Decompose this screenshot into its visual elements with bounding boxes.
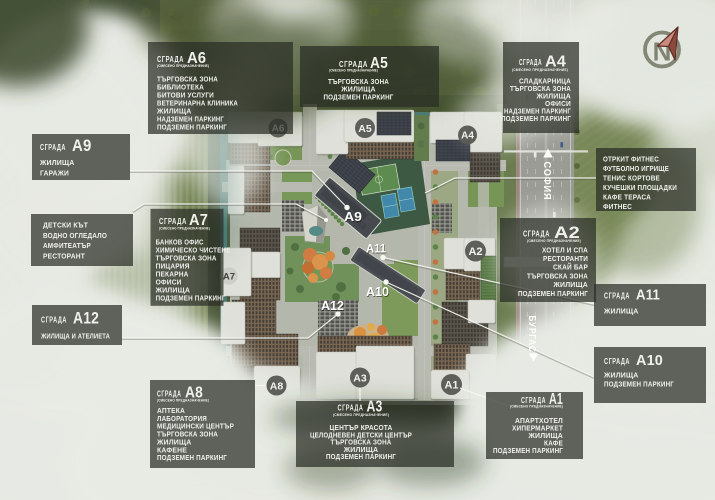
- svg-text:A2: A2: [468, 246, 482, 258]
- svg-text:СГРАДА: СГРАДА: [41, 316, 67, 325]
- svg-text:A10: A10: [636, 353, 663, 369]
- svg-text:ЖИЛИЩА: ЖИЛИЩА: [553, 280, 589, 289]
- svg-text:A11: A11: [366, 242, 386, 256]
- svg-text:ПОДЗЕМЕН ПАРКИНГ: ПОДЗЕМЕН ПАРКИНГ: [501, 114, 571, 123]
- svg-text:A12: A12: [321, 299, 344, 313]
- svg-text:(СМЕСЕНО ПРЕДНАЗНАЧЕНИЕ): (СМЕСЕНО ПРЕДНАЗНАЧЕНИЕ): [333, 412, 389, 417]
- svg-text:A1: A1: [444, 379, 458, 391]
- svg-text:(СМЕСЕНО ПРЕДНАЗНАЧЕНИЕ): (СМЕСЕНО ПРЕДНАЗНАЧЕНИЕ): [527, 238, 581, 243]
- svg-text:A11: A11: [636, 288, 660, 304]
- svg-text:СГРАДА: СГРАДА: [604, 357, 630, 366]
- svg-text:A12: A12: [73, 310, 99, 328]
- svg-text:ФУТБОЛНО ИГРИЩЕ: ФУТБОЛНО ИГРИЩЕ: [603, 164, 669, 173]
- svg-text:(СМЕСЕНО ПРЕДНАЗНАЧЕНИЕ): (СМЕСЕНО ПРЕДНАЗНАЧЕНИЕ): [510, 404, 563, 409]
- svg-text:A8: A8: [270, 380, 284, 392]
- svg-text:ЖИЛИЩА: ЖИЛИЩА: [603, 307, 639, 316]
- svg-text:(СМЕСЕНО ПРЕДНАЗНАЧЕНИЕ): (СМЕСЕНО ПРЕДНАЗНАЧЕНИЕ): [159, 225, 210, 230]
- svg-text:ГАРАЖИ: ГАРАЖИ: [40, 169, 69, 178]
- svg-text:СКАЙ БАР: СКАЙ БАР: [553, 263, 588, 272]
- svg-text:ПОДЗЕМЕН ПАРКИНГ: ПОДЗЕМЕН ПАРКИНГ: [326, 452, 396, 461]
- svg-text:ДЕТСКИ КЪТ: ДЕТСКИ КЪТ: [43, 221, 88, 230]
- svg-text:КАФЕ ТЕРАСА: КАФЕ ТЕРАСА: [603, 192, 651, 201]
- svg-text:A3: A3: [353, 372, 367, 384]
- svg-text:A10: A10: [366, 284, 389, 299]
- svg-text:КУЧЕШКИ ПЛОЩАДКИ: КУЧЕШКИ ПЛОЩАДКИ: [603, 183, 677, 192]
- svg-text:ОТРКИТ ФИТНЕС: ОТРКИТ ФИТНЕС: [603, 155, 659, 164]
- svg-text:(СМЕСЕНО ПРЕДНАЗНАЧЕНИЕ): (СМЕСЕНО ПРЕДНАЗНАЧЕНИЕ): [157, 398, 209, 403]
- svg-text:(СМЕСЕНО ПРЕДНАЗНАЧЕНИЕ): (СМЕСЕНО ПРЕДНАЗНАЧЕНИЕ): [329, 68, 378, 73]
- svg-text:ФИТНЕС: ФИТНЕС: [603, 202, 632, 211]
- svg-text:(СМЕСЕНО ПРЕДНАЗНАЧЕНИЕ): (СМЕСЕНО ПРЕДНАЗНАЧЕНИЕ): [157, 63, 210, 68]
- svg-text:ЖИЛИЩА: ЖИЛИЩА: [603, 371, 639, 380]
- svg-text:ТЪРГОВСКА ЗОНА: ТЪРГОВСКА ЗОНА: [527, 271, 588, 280]
- svg-text:ПОДЗЕМЕН ПАРКИНГ: ПОДЗЕМЕН ПАРКИНГ: [604, 380, 674, 389]
- svg-text:A4: A4: [461, 131, 474, 142]
- svg-text:ВОДНО ОГЛЕДАЛО: ВОДНО ОГЛЕДАЛО: [43, 231, 107, 240]
- svg-text:БУРГАС: БУРГАС: [526, 316, 538, 353]
- svg-text:ПОДЗЕМЕН ПАРКИНГ: ПОДЗЕМЕН ПАРКИНГ: [156, 294, 226, 303]
- svg-text:A7: A7: [223, 271, 235, 282]
- svg-text:СГРАДА: СГРАДА: [519, 58, 542, 67]
- svg-text:СГРАДА: СГРАДА: [604, 292, 630, 301]
- svg-text:A9: A9: [72, 137, 92, 155]
- svg-text:АМФИТЕАТЪР: АМФИТЕАТЪР: [43, 241, 91, 250]
- svg-text:ПОДЗЕМЕН ПАРКИНГ: ПОДЗЕМЕН ПАРКИНГ: [518, 289, 588, 298]
- svg-text:ХОТЕЛ И СПА: ХОТЕЛ И СПА: [542, 245, 588, 254]
- svg-text:ПОДЗЕМЕН ПАРКИНГ: ПОДЗЕМЕН ПАРКИНГ: [157, 453, 227, 462]
- svg-text:СОФИЯ: СОФИЯ: [541, 162, 553, 201]
- svg-text:A9: A9: [344, 209, 362, 224]
- svg-text:(СМЕСЕНО ПРЕДНАЗНАЧЕНИЕ): (СМЕСЕНО ПРЕДНАЗНАЧЕНИЕ): [512, 67, 568, 72]
- svg-text:ПОДЗЕМЕН ПАРКИНГ: ПОДЗЕМЕН ПАРКИНГ: [157, 123, 227, 132]
- svg-text:A5: A5: [358, 123, 372, 135]
- svg-text:ЖИЛИЩА И АТЕЛИЕТА: ЖИЛИЩА И АТЕЛИЕТА: [40, 332, 110, 341]
- svg-text:ПОДЗЕМЕН ПАРКИНГ: ПОДЗЕМЕН ПАРКИНГ: [324, 92, 394, 101]
- svg-text:РЕСТОРАНТ: РЕСТОРАНТ: [43, 252, 85, 261]
- svg-text:ТЕНИС КОРТОВЕ: ТЕНИС КОРТОВЕ: [603, 173, 660, 182]
- svg-text:ЖИЛИЩА: ЖИЛИЩА: [39, 158, 75, 167]
- svg-text:ПОДЗЕМЕН ПАРКИНГ: ПОДЗЕМЕН ПАРКИНГ: [493, 446, 563, 455]
- svg-text:СГРАДА: СГРАДА: [40, 143, 66, 152]
- svg-text:РЕСТОРАНТИ: РЕСТОРАНТИ: [543, 254, 588, 263]
